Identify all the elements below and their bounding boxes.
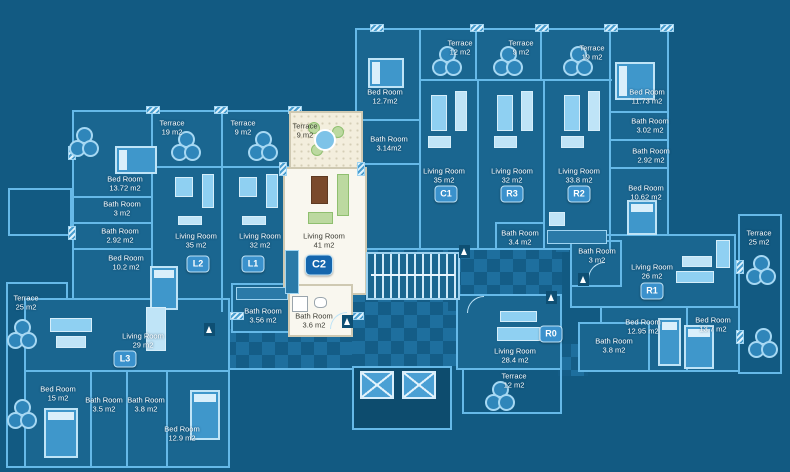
tv-bench-icon	[500, 311, 537, 322]
room-name: Terrace	[230, 119, 255, 128]
wall-pier	[470, 24, 484, 32]
room-area: 3.02 m2	[631, 126, 669, 135]
wall	[475, 28, 477, 80]
room-area: 13.7 m2	[695, 325, 730, 334]
label-bedroom-15: Bed Room15 m2	[40, 385, 75, 404]
sofa-icon	[431, 95, 447, 131]
label-bathroom-3-02: Bath Room3.02 m2	[631, 117, 669, 136]
label-bathroom-3-56: Bath Room3.56 m2	[244, 307, 282, 326]
wall-pier	[736, 260, 744, 274]
label-terrace-25-left: Terrace25 m2	[13, 294, 38, 313]
room-name: Living Room	[303, 232, 345, 241]
label-bedroom-12-9: Bed Room12.9 m2	[164, 425, 199, 444]
room-area: 25 m2	[746, 238, 771, 247]
sofa-icon	[337, 174, 349, 216]
kitchen-counter-icon	[285, 250, 299, 294]
bench-icon	[494, 136, 517, 148]
label-terrace-19-top: Terrace19 m2	[579, 44, 604, 63]
entry-arrow-icon	[546, 291, 557, 304]
sofa-icon	[50, 318, 92, 332]
cabinet-icon	[239, 177, 257, 197]
room-area: 2.92 m2	[101, 236, 139, 245]
plant-icon	[746, 255, 776, 285]
wall-pier	[604, 24, 618, 32]
sofa-icon	[497, 95, 513, 131]
wall	[90, 372, 92, 466]
unit-badge-r2[interactable]: R2	[568, 186, 591, 203]
wall-pier	[736, 330, 744, 344]
room-name: Living Room	[423, 167, 465, 176]
unit-badge-l1[interactable]: L1	[242, 256, 265, 273]
sofa-icon	[202, 174, 214, 208]
room-area: 10.62 m2	[628, 193, 663, 202]
rug-icon	[682, 256, 712, 267]
label-terrace-9-top: Terrace9 m2	[508, 39, 533, 58]
toilet-icon	[314, 297, 327, 308]
label-bathroom-3-left: Bath Room3 m2	[103, 200, 141, 219]
bench-icon	[428, 136, 451, 148]
label-living-33-8-r2: Living Room33.8 m2	[558, 167, 600, 186]
unit-badge-r0[interactable]: R0	[540, 326, 563, 343]
room-area: 19 m2	[159, 128, 184, 137]
room-name: Living Room	[491, 167, 533, 176]
label-bedroom-13-7: Bed Room13.7 m2	[695, 316, 730, 335]
room-name: Bath Room	[127, 396, 165, 405]
room-name: Bath Room	[370, 135, 408, 144]
room-name: Bed Room	[625, 318, 660, 327]
bench-icon	[561, 136, 584, 148]
room-name: Living Room	[122, 332, 164, 341]
room-name: Bed Room	[164, 425, 199, 434]
room-name: Bath Room	[244, 307, 282, 316]
room-name: Bath Room	[501, 229, 539, 238]
room-area: 3.6 m2	[295, 321, 333, 330]
room-area: 32 m2	[239, 241, 281, 250]
room-area: 26 m2	[631, 272, 673, 281]
wall	[150, 166, 300, 168]
room-area: 12 m2	[501, 381, 526, 390]
room-area: 9 m2	[508, 48, 533, 57]
room-area: 13.72 m2	[107, 184, 142, 193]
shower-icon	[292, 296, 308, 312]
room-name: Bath Room	[103, 200, 141, 209]
room-name: Bath Room	[295, 312, 333, 321]
label-bathroom-3-8-l3: Bath Room3.8 m2	[127, 396, 165, 415]
dining-table-icon	[311, 176, 328, 204]
plant-icon	[7, 319, 37, 349]
wall	[74, 196, 152, 198]
kitchen-counter-icon	[236, 287, 288, 300]
wall	[419, 28, 421, 250]
wall-pier	[214, 106, 228, 114]
bed-icon	[150, 266, 178, 310]
wall-pier	[535, 24, 549, 32]
label-bathroom-3-4: Bath Room3.4 m2	[501, 229, 539, 248]
wall	[355, 119, 420, 121]
room-name: Terrace	[501, 372, 526, 381]
bed-icon	[115, 146, 157, 174]
label-bedroom-11-73: Bed Room11.73 m2	[629, 88, 664, 107]
label-terrace-25-right: Terrace25 m2	[746, 229, 771, 248]
wall-pier	[230, 312, 244, 320]
wall	[74, 222, 152, 224]
label-bedroom-13-72: Bed Room13.72 m2	[107, 175, 142, 194]
sofa-icon	[676, 271, 714, 283]
room-name: Terrace	[292, 122, 317, 131]
room-area: 29 m2	[122, 341, 164, 350]
label-bedroom-10-2: Bed Room10.2 m2	[108, 254, 143, 273]
bed-icon	[627, 200, 657, 235]
cabinet-icon	[455, 91, 467, 131]
room-name: Terrace	[579, 44, 604, 53]
label-bathroom-2-92-right: Bath Room2.92 m2	[632, 147, 670, 166]
room-area: 9 m2	[292, 131, 317, 140]
room-area: 3.8 m2	[595, 346, 633, 355]
entry-arrow-icon	[342, 315, 353, 328]
room-name: Terrace	[508, 39, 533, 48]
floor-plan: Terrace19 m2 Terrace9 m2 Bed Room13.72 m…	[0, 0, 790, 472]
room-area: 11.73 m2	[629, 97, 664, 106]
unit-badge-c2-selected[interactable]: C2	[305, 255, 333, 276]
elevator-icon	[360, 371, 394, 399]
room-name: Bed Room	[108, 254, 143, 263]
kitchen-counter-icon	[547, 230, 607, 244]
room-name: Bath Room	[101, 227, 139, 236]
room-area: 3.4 m2	[501, 238, 539, 247]
wall	[166, 372, 168, 466]
room-name: Bed Room	[629, 88, 664, 97]
staircase	[366, 252, 460, 300]
room-area: 3.14m2	[370, 144, 408, 153]
sofa-icon	[564, 95, 580, 131]
bed-icon	[44, 408, 78, 458]
elevator-icon	[402, 371, 436, 399]
room-name: Terrace	[13, 294, 38, 303]
wall	[126, 372, 128, 466]
room-name: Bed Room	[628, 184, 663, 193]
fridge-icon	[549, 212, 565, 226]
label-living-26-r1: Living Room26 m2	[631, 263, 673, 282]
room-name: Bath Room	[595, 337, 633, 346]
room-area: 3.56 m2	[244, 316, 282, 325]
unit-badge-r3[interactable]: R3	[501, 186, 524, 203]
label-bedroom-10-62: Bed Room10.62 m2	[628, 184, 663, 203]
balcony-top-left	[8, 188, 72, 236]
bench-icon	[178, 216, 202, 225]
room-area: 3 m2	[578, 256, 616, 265]
wall	[610, 167, 668, 169]
wall	[540, 28, 542, 80]
room-name: Living Room	[631, 263, 673, 272]
label-bathroom-3-8-r0: Bath Room3.8 m2	[595, 337, 633, 356]
room-name: Terrace	[447, 39, 472, 48]
room-area: 12 m2	[447, 48, 472, 57]
wall-pier	[660, 24, 674, 32]
label-living-28-4-r0: Living Room28.4 m2	[494, 347, 536, 366]
label-bathroom-2-92-left: Bath Room2.92 m2	[101, 227, 139, 246]
label-bathroom-3-14: Bath Room3.14m2	[370, 135, 408, 154]
room-name: Bath Room	[578, 247, 616, 256]
wall-pier	[68, 226, 76, 240]
wall-pier	[279, 162, 287, 176]
label-bedroom-12-95: Bed Room12.95 m2	[625, 318, 660, 337]
room-area: 3 m2	[103, 209, 141, 218]
room-area: 41 m2	[303, 241, 345, 250]
room-name: Bath Room	[632, 147, 670, 156]
plant-icon	[69, 127, 99, 157]
room-area: 12.7m2	[367, 97, 402, 106]
wall	[420, 79, 612, 81]
room-name: Terrace	[746, 229, 771, 238]
unit-badge-l3[interactable]: L3	[114, 351, 137, 368]
room-name: Bed Room	[40, 385, 75, 394]
plant-icon	[7, 399, 37, 429]
room-name: Bath Room	[85, 396, 123, 405]
wall	[221, 112, 223, 312]
label-bathroom-3-6: Bath Room3.6 m2	[295, 312, 333, 331]
sofa-icon	[497, 327, 540, 341]
label-living-35-l2: Living Room35 m2	[175, 232, 217, 251]
label-living-32-l1: Living Room32 m2	[239, 232, 281, 251]
label-terrace-19-left: Terrace19 m2	[159, 119, 184, 138]
cabinet-icon	[521, 91, 533, 131]
entry-arrow-icon	[204, 323, 215, 336]
room-area: 33.8 m2	[558, 176, 600, 185]
bed-icon	[368, 58, 404, 88]
room-name: Living Room	[494, 347, 536, 356]
room-area: 12.9 m2	[164, 434, 199, 443]
room-name: Living Room	[558, 167, 600, 176]
bed-icon	[658, 318, 681, 366]
room-area: 15 m2	[40, 394, 75, 403]
sofa-icon	[266, 174, 278, 208]
cabinet-icon	[716, 240, 730, 268]
entry-arrow-icon	[578, 273, 589, 286]
wall	[543, 79, 545, 250]
wall-pier	[357, 162, 365, 176]
loveseat-icon	[308, 212, 333, 224]
label-living-29-l3: Living Room29 m2	[122, 332, 164, 351]
unit-badge-c1[interactable]: C1	[435, 186, 458, 203]
unit-badge-r1[interactable]: R1	[641, 283, 664, 300]
room-area: 19 m2	[579, 53, 604, 62]
room-area: 10.2 m2	[108, 263, 143, 272]
label-terrace-12-bottom: Terrace12 m2	[501, 372, 526, 391]
wall-pier	[370, 24, 384, 32]
label-living-41-c2: Living Room41 m2	[303, 232, 345, 251]
label-terrace-12-top: Terrace12 m2	[447, 39, 472, 58]
cabinet-icon	[175, 177, 193, 197]
unit-badge-l2[interactable]: L2	[187, 256, 210, 273]
label-terrace-9-left: Terrace9 m2	[230, 119, 255, 138]
room-area: 9 m2	[230, 128, 255, 137]
room-name: Bed Room	[695, 316, 730, 325]
label-terrace-9-c2: Terrace9 m2	[292, 122, 317, 141]
room-area: 3.8 m2	[127, 405, 165, 414]
room-area: 2.92 m2	[632, 156, 670, 165]
entry-arrow-icon	[459, 245, 470, 258]
room-name: Bed Room	[107, 175, 142, 184]
wall	[610, 111, 668, 113]
room-area: 32 m2	[491, 176, 533, 185]
wall	[610, 139, 668, 141]
bench-icon	[242, 216, 266, 225]
wall	[74, 248, 152, 250]
room-area: 28.4 m2	[494, 356, 536, 365]
wall-pier	[146, 106, 160, 114]
room-name: Living Room	[175, 232, 217, 241]
label-bathroom-3-5: Bath Room3.5 m2	[85, 396, 123, 415]
room-name: Living Room	[239, 232, 281, 241]
room-area: 35 m2	[175, 241, 217, 250]
label-bathroom-3-r1: Bath Room3 m2	[578, 247, 616, 266]
room-name: Bed Room	[367, 88, 402, 97]
plant-icon	[748, 328, 778, 358]
room-area: 25 m2	[13, 303, 38, 312]
label-living-35-c1: Living Room35 m2	[423, 167, 465, 186]
room-name: Bath Room	[631, 117, 669, 126]
room-name: Terrace	[159, 119, 184, 128]
room-area: 3.5 m2	[85, 405, 123, 414]
label-living-32-r3: Living Room32 m2	[491, 167, 533, 186]
room-area: 35 m2	[423, 176, 465, 185]
cabinet-icon	[588, 91, 600, 131]
rug-icon	[56, 336, 86, 348]
room-area: 12.95 m2	[625, 327, 660, 336]
wall	[477, 79, 479, 250]
label-bedroom-12-7: Bed Room12.7m2	[367, 88, 402, 107]
